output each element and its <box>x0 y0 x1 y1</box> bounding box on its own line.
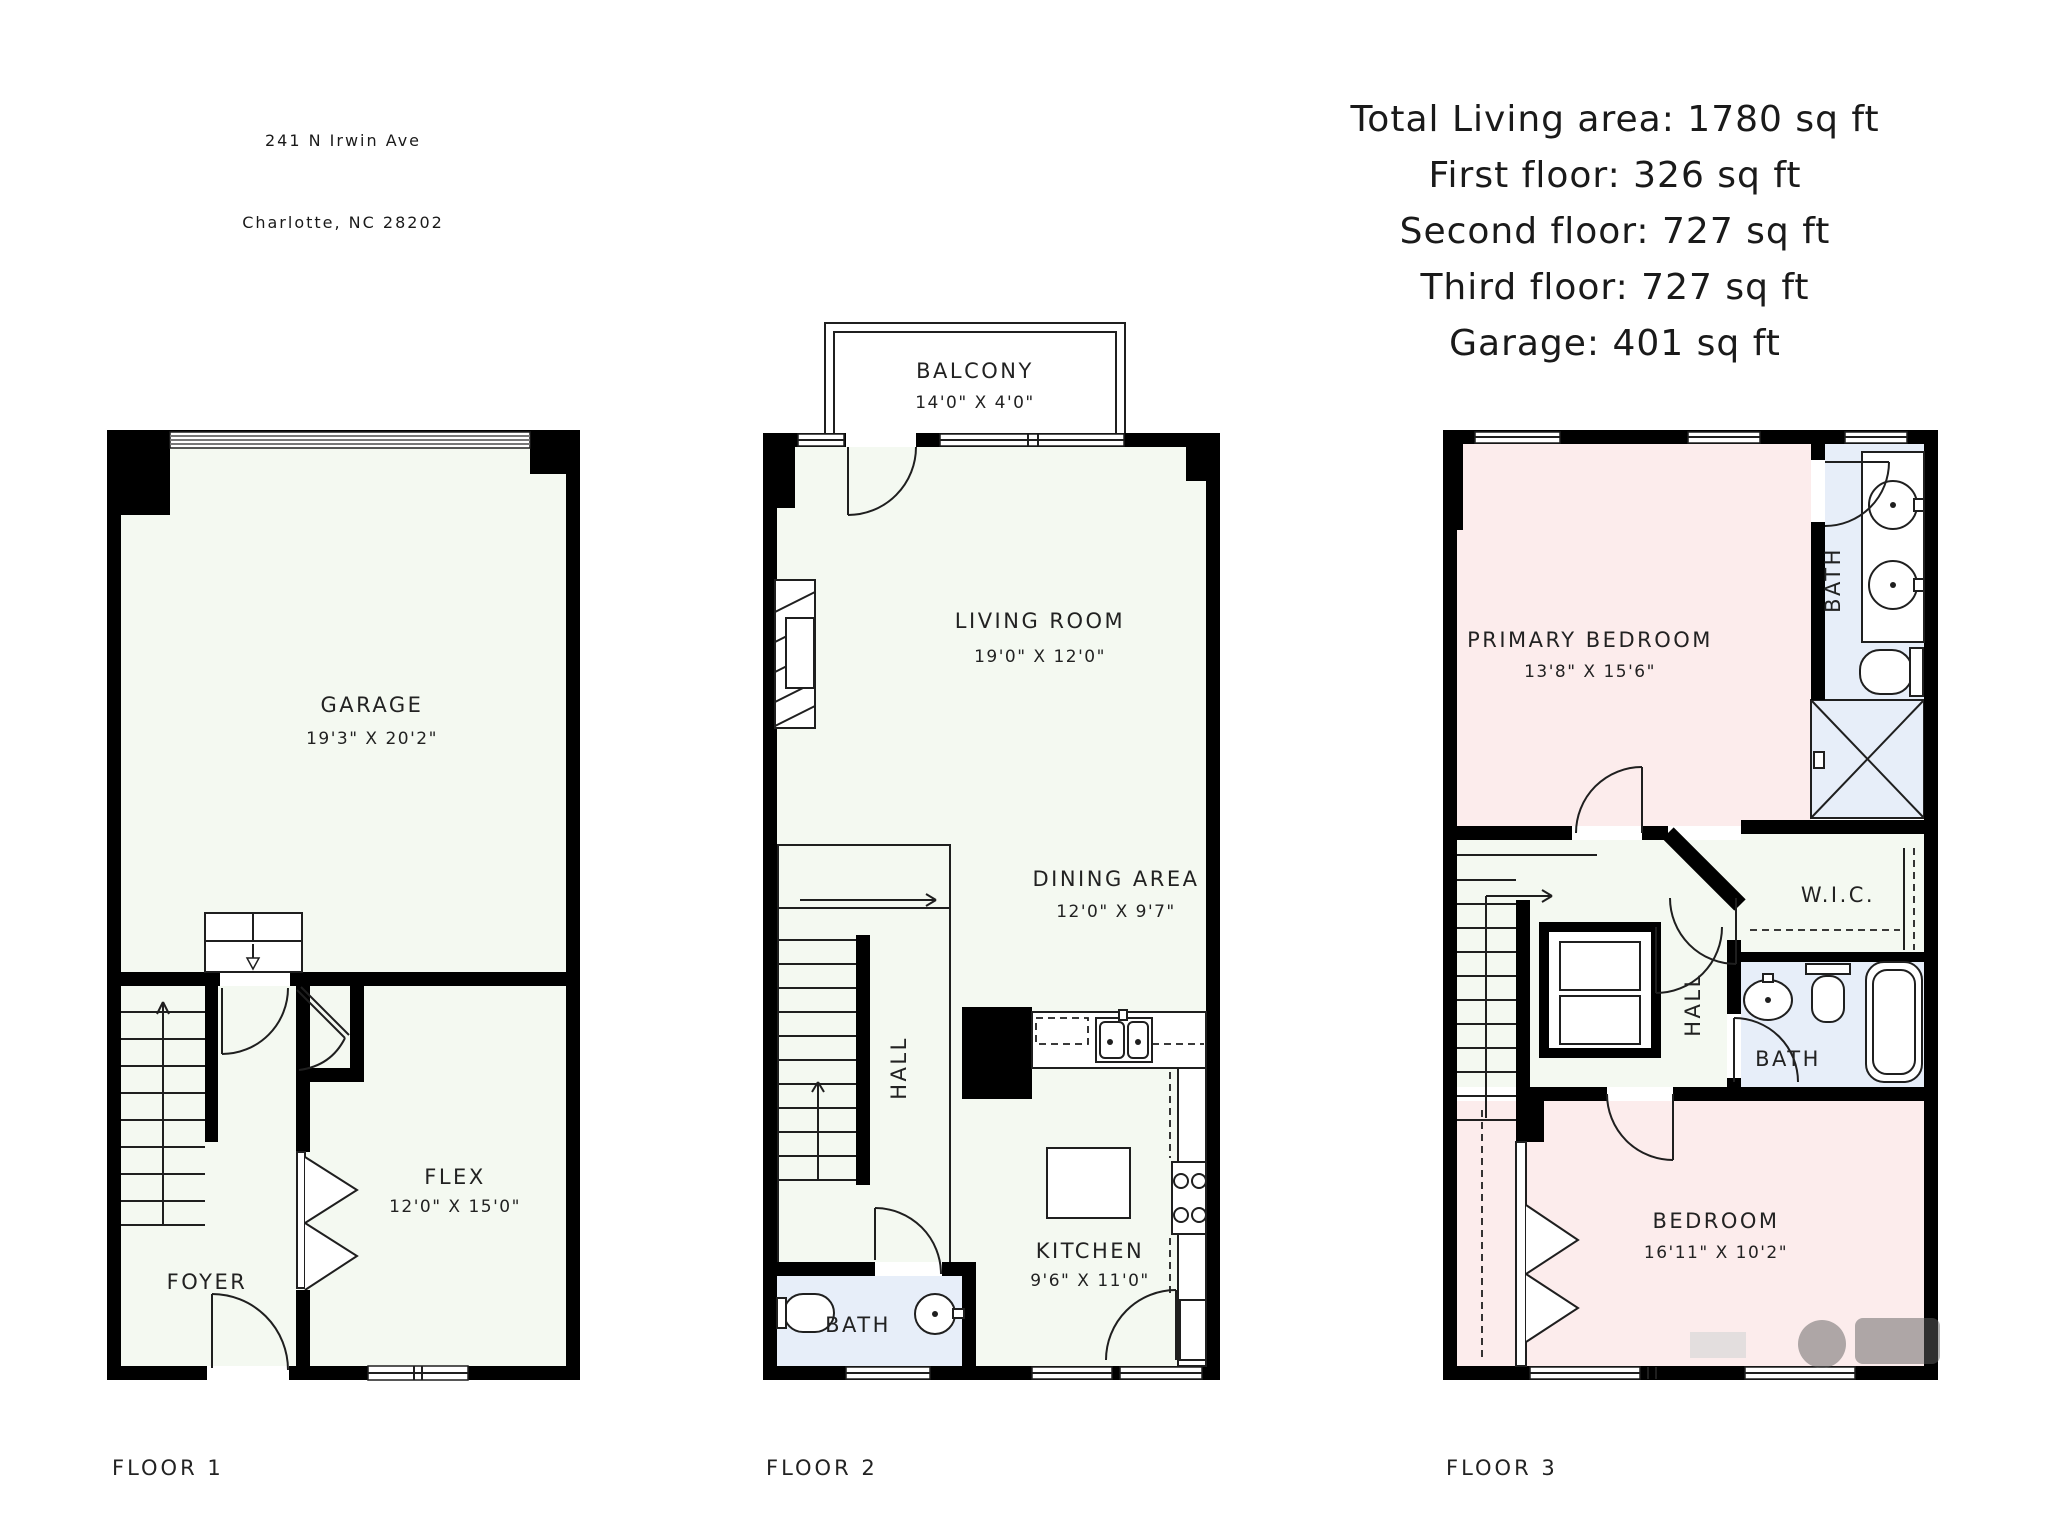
dining-area-dims: 12'0" X 9'7" <box>1056 902 1176 922</box>
flex-window <box>368 1366 468 1380</box>
wic-label: W.I.C. <box>1801 883 1875 907</box>
foyer-label: FOYER <box>167 1270 248 1294</box>
kitchen-label: KITCHEN <box>1036 1239 1145 1263</box>
floor1-caption: FLOOR 1 <box>112 1456 224 1480</box>
bath1-vanity <box>1862 452 1924 642</box>
hall-label-f3: HALL <box>1681 973 1705 1037</box>
floorplan-drawing: GARAGE 19'3" X 20'2" FLEX 12'0" X 15'0" … <box>0 0 2047 1535</box>
living-room-window <box>798 434 844 446</box>
wall-notch <box>530 430 580 474</box>
bathtub-icon <box>1866 962 1922 1082</box>
shower <box>1811 700 1924 818</box>
primary-bedroom-label: PRIMARY BEDROOM <box>1467 628 1713 652</box>
balcony-window <box>940 434 1124 446</box>
floor3-plan: PRIMARY BEDROOM 13'8" X 15'6" BATH W.I.C… <box>1443 430 1940 1380</box>
balcony-label: BALCONY <box>916 359 1034 383</box>
flex-label: FLEX <box>424 1165 485 1189</box>
balcony-dims: 14'0" X 4'0" <box>915 393 1035 413</box>
bath1-toilet-icon <box>1860 648 1923 696</box>
floor1-plan: GARAGE 19'3" X 20'2" FLEX 12'0" X 15'0" … <box>107 430 580 1380</box>
wall-notch <box>1186 433 1220 481</box>
kitchen-island <box>1047 1148 1130 1218</box>
flex-dims: 12'0" X 15'0" <box>389 1197 521 1217</box>
bedroom-dims: 16'11" X 10'2" <box>1644 1243 1788 1263</box>
garage-door <box>170 432 530 448</box>
living-room-dims: 19'0" X 12'0" <box>974 647 1106 667</box>
floor2-caption: FLOOR 2 <box>766 1456 878 1480</box>
bath2-label: BATH <box>1755 1047 1821 1071</box>
kitchen-sink-icon <box>1096 1010 1152 1062</box>
bath2-toilet-icon <box>1806 964 1850 1022</box>
wall-notch <box>763 433 795 508</box>
fridge-icon <box>1180 1300 1206 1360</box>
bath1-label: BATH <box>1821 547 1845 613</box>
stair-landing <box>205 913 302 972</box>
dining-area-label: DINING AREA <box>1032 867 1199 891</box>
living-room-label: LIVING ROOM <box>955 609 1125 633</box>
wall-notch <box>107 430 170 515</box>
bath-label-f2: BATH <box>825 1313 891 1337</box>
garage-label: GARAGE <box>321 693 424 717</box>
stove-icon <box>1172 1162 1206 1234</box>
hall-label-f2: HALL <box>887 1036 911 1100</box>
garage-dims: 19'3" X 20'2" <box>306 729 438 749</box>
floorplan-page: 241 N Irwin Ave Charlotte, NC 28202 Tota… <box>0 0 2047 1535</box>
floor3-caption: FLOOR 3 <box>1446 1456 1558 1480</box>
bedroom-label: BEDROOM <box>1652 1209 1779 1233</box>
wall-notch <box>1443 430 1463 530</box>
floor2-plan: BALCONY 14'0" X 4'0" LIVING ROOM 19'0" X… <box>763 323 1220 1380</box>
primary-bedroom-dims: 13'8" X 15'6" <box>1524 662 1656 682</box>
fireplace <box>775 580 815 728</box>
kitchen-dims: 9'6" X 11'0" <box>1030 1271 1150 1291</box>
